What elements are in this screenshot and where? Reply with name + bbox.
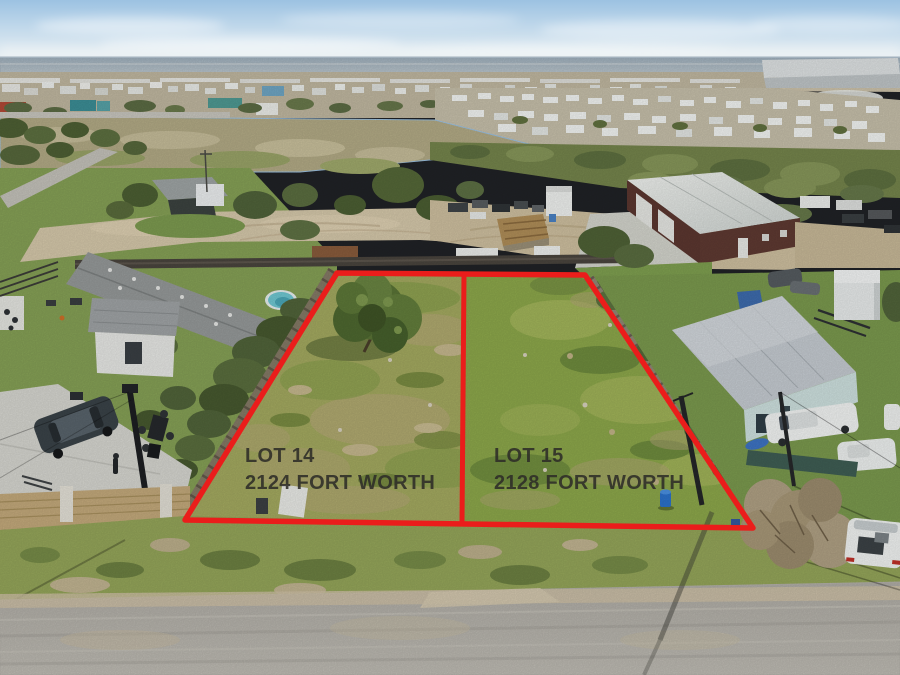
sky (0, 0, 900, 64)
lot14-address-label: 2124 FORT WORTH (245, 472, 435, 494)
aerial-photo-canvas: LOT 14 2124 FORT WORTH LOT 15 2128 FORT … (0, 0, 900, 675)
aerial-listing-photo: LOT 14 2124 FORT WORTH LOT 15 2128 FORT … (0, 0, 900, 675)
photo-grain (0, 58, 900, 675)
lot15-address-label: 2128 FORT WORTH (494, 472, 684, 494)
lot15-label: LOT 15 (494, 445, 564, 467)
lot14-label: LOT 14 (245, 445, 315, 467)
lot-divider-line (462, 274, 464, 523)
